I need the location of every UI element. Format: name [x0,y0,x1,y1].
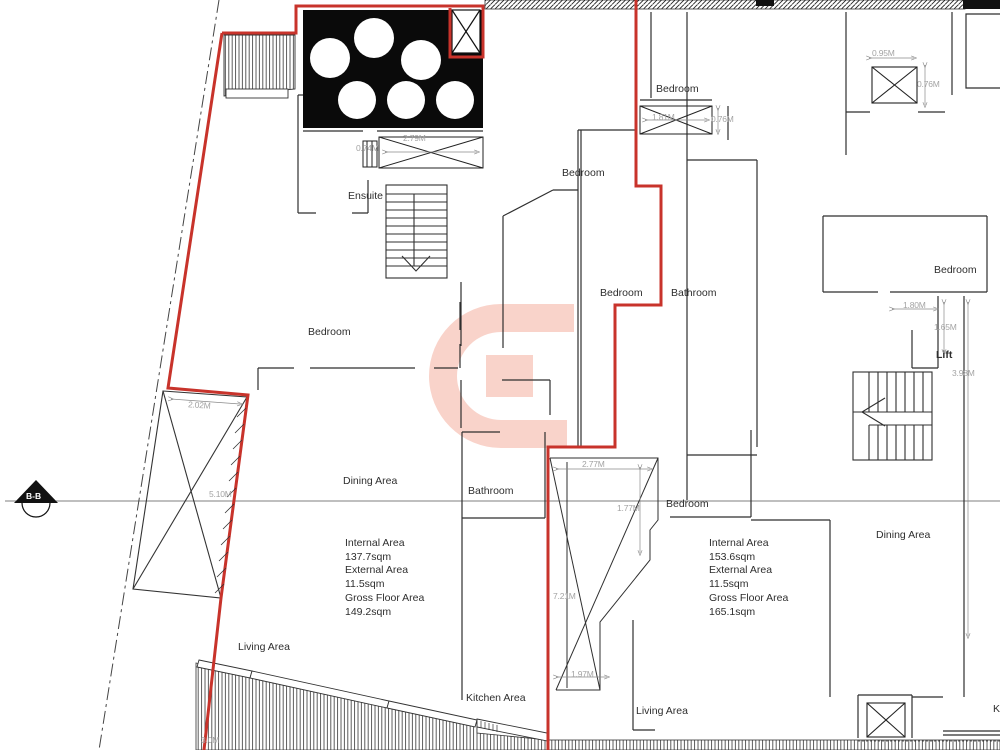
roof-shaft-box [452,10,480,53]
internal-area-label: Internal Area [345,537,424,551]
area-summary-left-unit: Internal Area 137.7sqm External Area 11.… [345,537,424,619]
roof-stairs-hatch [224,35,295,98]
party-wall-hatch [485,0,1000,9]
external-area-label: External Area [709,564,788,578]
dim-terrace-length: 5.10M [209,489,232,499]
room-label-kitchen-right-partial: K [993,704,1000,715]
dim-terrace-width: 2.02M [188,399,211,411]
walls-right-unit [633,12,1000,741]
dim-stair-length: 3.98M [952,368,975,378]
room-label-bathroom-left: Bathroom [468,486,514,497]
lift-dimension-lines [892,302,968,636]
external-area-value: 11.5sqm [345,578,424,592]
external-area-label: External Area [345,564,424,578]
area-summary-right-unit: Internal Area 153.6sqm External Area 11.… [709,537,788,619]
room-label-bedroom-top-right: Bedroom [656,84,699,95]
floor-plan-drawing: Ensuite Bedroom Bedroom Bedroom Bathroom… [0,0,1000,750]
section-marker-label: B-B [26,491,41,501]
dim-window-left: 1.81M [652,112,675,122]
dim-lift-width: 1.80M [903,300,926,310]
dim-shaft-top-depth: 0.76M [917,79,940,89]
room-label-lift: Lift [936,350,952,361]
stairs-left [386,185,447,278]
watermark-g-logo [429,304,574,448]
dim-lift-depth: 1.65M [934,322,957,332]
room-label-dining-right: Dining Area [876,530,930,541]
dim-yard-step: 1.77M [617,503,640,513]
room-label-dining-left: Dining Area [343,476,397,487]
gross-area-value: 165.1sqm [709,606,788,620]
room-label-bathroom-mid: Bathroom [671,288,717,299]
external-area-value: 11.5sqm [709,578,788,592]
dim-tank-window-large: 2.79M [403,133,426,143]
floor-plan-linework [0,0,1000,750]
internal-area-value: 137.7sqm [345,551,424,565]
gross-area-label: Gross Floor Area [345,592,424,606]
site-boundary-line [99,0,219,750]
room-label-bedroom-far-right: Bedroom [934,265,977,276]
gross-area-label: Gross Floor Area [709,592,788,606]
room-label-living-left: Living Area [238,642,290,653]
room-label-bedroom-right: Bedroom [666,499,709,510]
yard-void [550,458,658,690]
internal-area-value: 153.6sqm [709,551,788,565]
dim-tank-window-small: 0.74M [356,143,379,153]
gross-area-value: 149.2sqm [345,606,424,620]
dim-yard-height: 7.21M [553,591,576,601]
internal-area-label: Internal Area [709,537,788,551]
dim-window-left-depth: 0.76M [711,114,734,124]
room-label-living-right: Living Area [636,706,688,717]
room-label-kitchen-left: Kitchen Area [466,693,526,704]
dim-yard-bottom: 1.97M [571,669,594,679]
room-label-bedroom-top-mid: Bedroom [562,168,605,179]
room-label-bedroom-left: Bedroom [308,327,351,338]
room-label-ensuite: Ensuite [348,191,383,202]
stairs-right [853,372,932,460]
room-label-bedroom-mid: Bedroom [600,288,643,299]
dim-shaft-top-width: 0.95M [872,48,895,58]
dim-yard-top: 2.77M [582,459,605,469]
shaft-bottom-right [867,703,905,737]
dim-bottom-edge-partial: 3.0M [201,735,219,745]
